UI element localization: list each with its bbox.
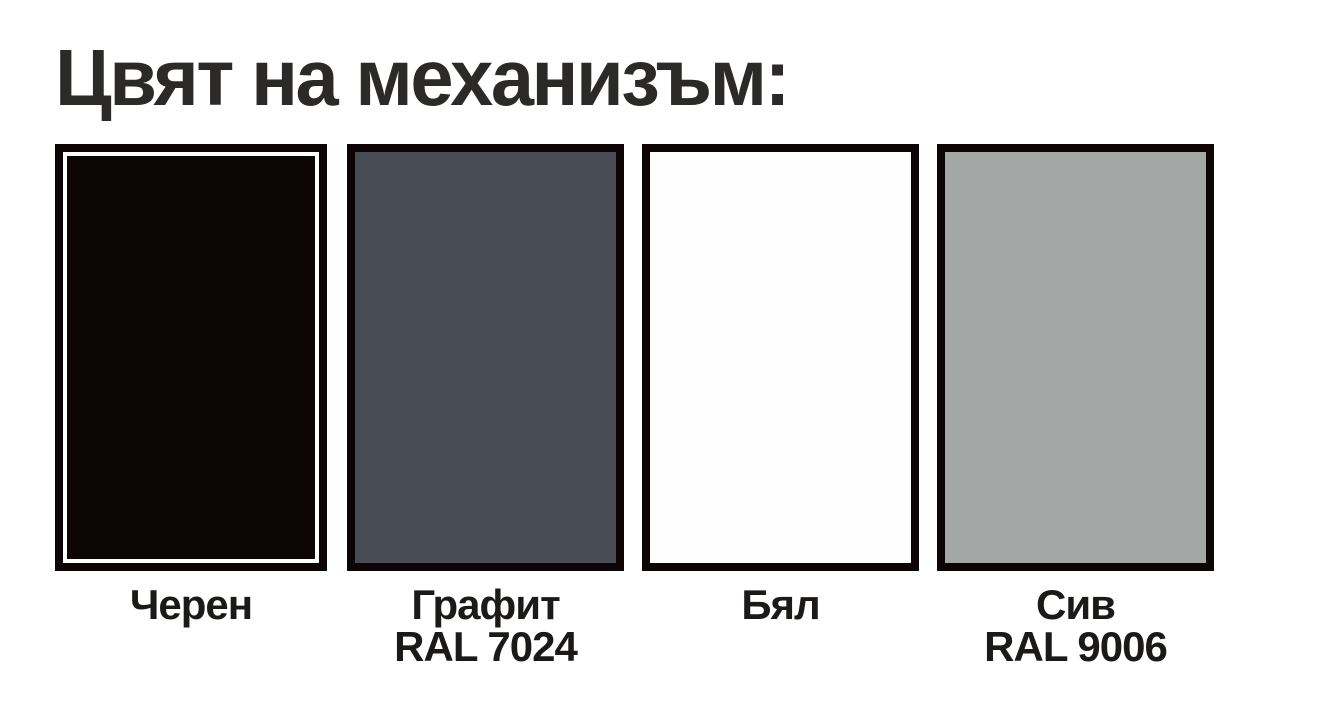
- swatch-label-gray: Сив RAL 9006: [937, 584, 1214, 668]
- swatch-gray-fill: [945, 152, 1206, 563]
- swatch-black: [55, 144, 327, 571]
- swatch-black-fill: [63, 152, 319, 563]
- swatch-label-graphite-name: Графит: [347, 584, 624, 626]
- swatch-label-white-name: Бял: [642, 584, 919, 626]
- page-title: Цвят на механизъм:: [55, 36, 788, 120]
- swatch-label-graphite: Графит RAL 7024: [347, 584, 624, 668]
- swatch-label-gray-name: Сив: [937, 584, 1214, 626]
- swatch-label-graphite-ral: RAL 7024: [347, 626, 624, 668]
- swatch-white: [642, 144, 919, 571]
- swatch-label-gray-ral: RAL 9006: [937, 626, 1214, 668]
- swatch-label-black-name: Черен: [55, 584, 327, 626]
- swatch-graphite: [347, 144, 624, 571]
- swatch-graphite-fill: [355, 152, 616, 563]
- swatch-white-fill: [650, 152, 911, 563]
- swatch-label-white: Бял: [642, 584, 919, 626]
- swatch-gray: [937, 144, 1214, 571]
- color-options-infographic: Цвят на механизъм: Черен Графит RAL 7024…: [0, 0, 1317, 703]
- swatch-label-black: Черен: [55, 584, 327, 626]
